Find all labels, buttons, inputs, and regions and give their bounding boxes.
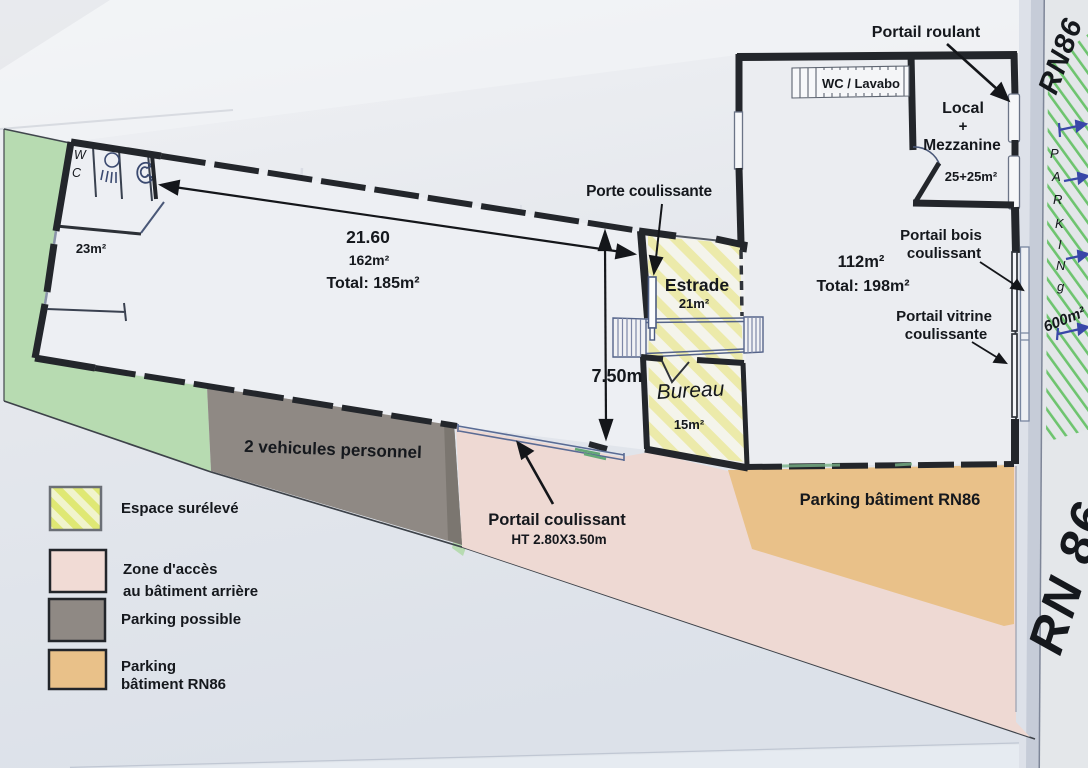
svg-text:coulissant: coulissant: [907, 245, 981, 262]
svg-text:N: N: [1056, 258, 1066, 273]
svg-text:HT 2.80X3.50m: HT 2.80X3.50m: [511, 532, 606, 547]
svg-text:Portail vitrine: Portail vitrine: [896, 308, 992, 325]
svg-text:Zone d'accès: Zone d'accès: [123, 561, 217, 578]
svg-text:W: W: [74, 148, 87, 162]
svg-text:P: P: [1050, 146, 1059, 161]
svg-text:Parking bâtiment RN86: Parking bâtiment RN86: [800, 491, 981, 509]
svg-text:162m²: 162m²: [349, 252, 390, 268]
svg-text:25+25m²: 25+25m²: [945, 169, 998, 184]
svg-text:bâtiment RN86: bâtiment RN86: [121, 676, 226, 693]
svg-text:7.50m: 7.50m: [591, 366, 642, 386]
svg-text:Portail bois: Portail bois: [900, 227, 982, 244]
svg-text:Espace surélevé: Espace surélevé: [121, 500, 239, 517]
svg-text:Total: 185m²: Total: 185m²: [326, 275, 419, 292]
svg-text:WC / Lavabo: WC / Lavabo: [822, 76, 900, 91]
svg-text:A: A: [1051, 169, 1061, 184]
svg-text:23m²: 23m²: [76, 241, 107, 256]
svg-text:21m²: 21m²: [679, 296, 710, 311]
svg-text:Local: Local: [942, 100, 984, 117]
svg-text:Parking: Parking: [121, 658, 176, 675]
svg-text:g: g: [1057, 279, 1065, 294]
svg-text:Portail coulissant: Portail coulissant: [488, 511, 626, 529]
svg-text:Total: 198m²: Total: 198m²: [816, 278, 909, 295]
svg-text:C: C: [72, 166, 82, 180]
svg-text:Porte coulissante: Porte coulissante: [586, 183, 712, 200]
svg-text:Parking possible: Parking possible: [121, 611, 241, 628]
svg-text:15m²: 15m²: [674, 417, 705, 432]
svg-text:au bâtiment arrière: au bâtiment arrière: [123, 583, 258, 600]
svg-text:I: I: [1058, 237, 1062, 252]
svg-text:112m²: 112m²: [838, 253, 885, 271]
svg-text:21.60: 21.60: [346, 227, 390, 247]
svg-text:coulissante: coulissante: [905, 326, 988, 343]
svg-text:K: K: [1055, 216, 1065, 231]
svg-text:Mezzanine: Mezzanine: [923, 137, 1001, 154]
svg-text:Estrade: Estrade: [665, 275, 729, 295]
svg-text:Portail roulant: Portail roulant: [872, 24, 981, 41]
svg-text:Bureau: Bureau: [656, 377, 725, 404]
svg-text:+: +: [959, 118, 968, 135]
svg-text:R: R: [1053, 192, 1062, 207]
